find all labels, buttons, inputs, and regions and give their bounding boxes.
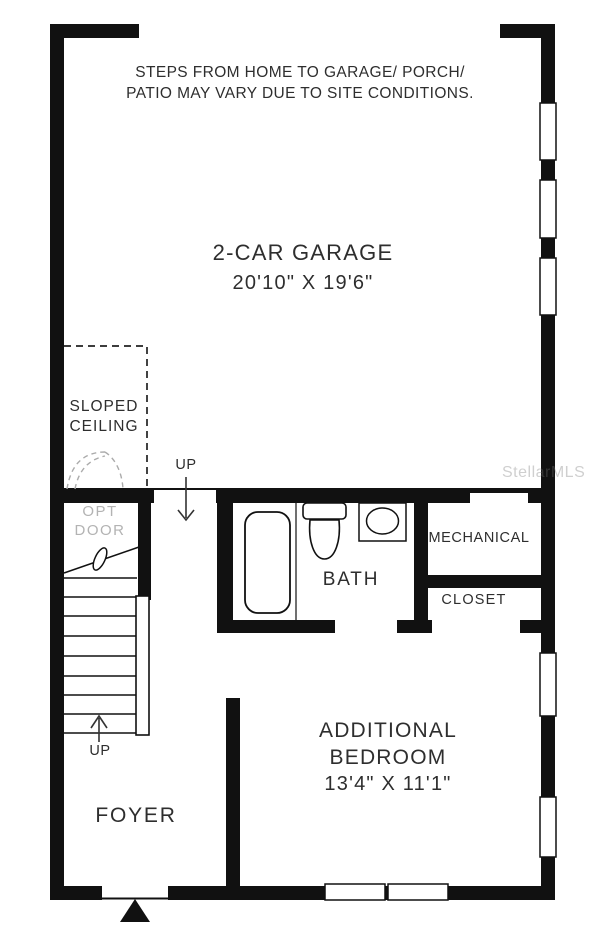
room-label-closet: CLOSET xyxy=(424,592,524,608)
disclaimer-line-2: PATIO MAY VARY DUE TO SITE CONDITIONS. xyxy=(0,83,600,104)
wall-closet-bottom-left xyxy=(397,620,432,633)
wall-garage-divider xyxy=(50,488,541,503)
room-label-garage: 2-CAR GARAGE 20'10" X 19'6" xyxy=(103,238,503,298)
window-bedroom-bottom-1 xyxy=(325,884,385,900)
up-label-top: UP xyxy=(166,457,206,473)
sloped-ceiling-line-1: SLOPED xyxy=(40,397,168,417)
opt-door-swing xyxy=(67,452,105,489)
disclaimer-note: STEPS FROM HOME TO GARAGE/ PORCH/ PATIO … xyxy=(0,62,600,104)
room-label-bath: BATH xyxy=(291,569,411,591)
wall-outer-top-left xyxy=(50,24,139,38)
stair-break-squiggle xyxy=(90,546,109,572)
disclaimer-line-1: STEPS FROM HOME TO GARAGE/ PORCH/ xyxy=(0,62,600,83)
mechanical-door-opening xyxy=(470,493,528,503)
stair-door-opening xyxy=(154,490,216,503)
window-bedroom-right-1 xyxy=(540,653,556,716)
wall-mechanical-bottom xyxy=(414,575,541,588)
opt-door-line-2: DOOR xyxy=(55,521,145,540)
wall-closet-bottom-right xyxy=(520,620,541,633)
room-label-foyer: FOYER xyxy=(61,804,211,828)
stairs xyxy=(64,546,149,735)
floor-plan: STEPS FROM HOME TO GARAGE/ PORCH/ PATIO … xyxy=(0,0,600,946)
bedroom-name-line-2: BEDROOM xyxy=(238,744,538,771)
entry-marker-triangle xyxy=(120,899,150,922)
bedroom-name-line-1: ADDITIONAL xyxy=(238,717,538,744)
bathtub xyxy=(245,512,290,613)
toilet-tank xyxy=(303,503,346,519)
window-bedroom-right-2 xyxy=(540,797,556,857)
garage-name: 2-CAR GARAGE xyxy=(103,238,503,268)
stellar-mls-watermark: StellarMLS xyxy=(502,464,585,482)
opt-door-swing xyxy=(105,452,123,489)
wall-outer-left xyxy=(50,24,64,900)
sink-basin xyxy=(367,508,399,534)
sloped-ceiling-label: SLOPED CEILING xyxy=(40,397,168,436)
window-bedroom-bottom-2 xyxy=(388,884,448,900)
garage-dimensions: 20'10" X 19'6" xyxy=(103,268,503,298)
room-label-bedroom: ADDITIONAL BEDROOM 13'4" X 11'1" xyxy=(238,717,538,798)
up-label-bottom: UP xyxy=(80,743,120,759)
wall-mechanical-left xyxy=(414,503,428,633)
fixtures xyxy=(245,503,406,620)
window-garage-1 xyxy=(540,103,556,160)
stair-stringer xyxy=(136,596,149,735)
opt-door-label: OPT DOOR xyxy=(55,502,145,540)
sloped-ceiling-line-2: CEILING xyxy=(40,417,168,437)
bedroom-dimensions: 13'4" X 11'1" xyxy=(238,771,538,798)
window-garage-2 xyxy=(540,180,556,238)
toilet-bowl xyxy=(310,520,340,559)
opt-door-line-1: OPT xyxy=(55,502,145,521)
wall-bath-left xyxy=(217,488,233,633)
window-garage-3 xyxy=(540,258,556,315)
room-label-mechanical: MECHANICAL xyxy=(416,530,542,546)
up-arrow-from-foyer xyxy=(91,716,107,742)
wall-bath-bottom xyxy=(217,620,335,633)
